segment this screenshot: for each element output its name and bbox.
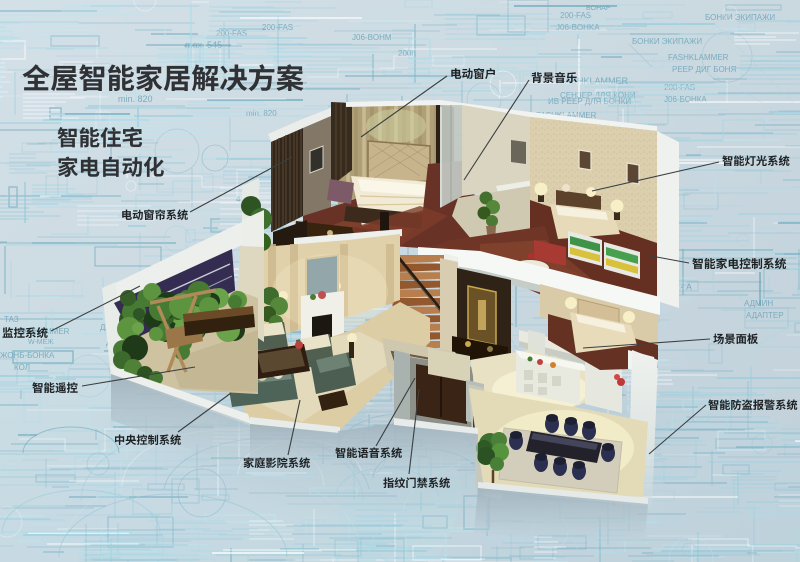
- svg-text:200-FAS: 200-FAS: [560, 11, 591, 20]
- svg-text:J06-BOHKA: J06-BOHKA: [556, 23, 600, 32]
- svg-text:БОНКИ ЭКИПАЖИ: БОНКИ ЭКИПАЖИ: [632, 37, 702, 46]
- svg-text:W-МЕЖ: W-МЕЖ: [28, 339, 54, 346]
- svg-text:J06-BOHM: J06-BOHM: [352, 33, 392, 42]
- svg-text:АДМИН: АДМИН: [744, 299, 773, 308]
- svg-text:min. 820: min. 820: [246, 109, 277, 118]
- svg-text:АДАПТЕР: АДАПТЕР: [746, 311, 784, 320]
